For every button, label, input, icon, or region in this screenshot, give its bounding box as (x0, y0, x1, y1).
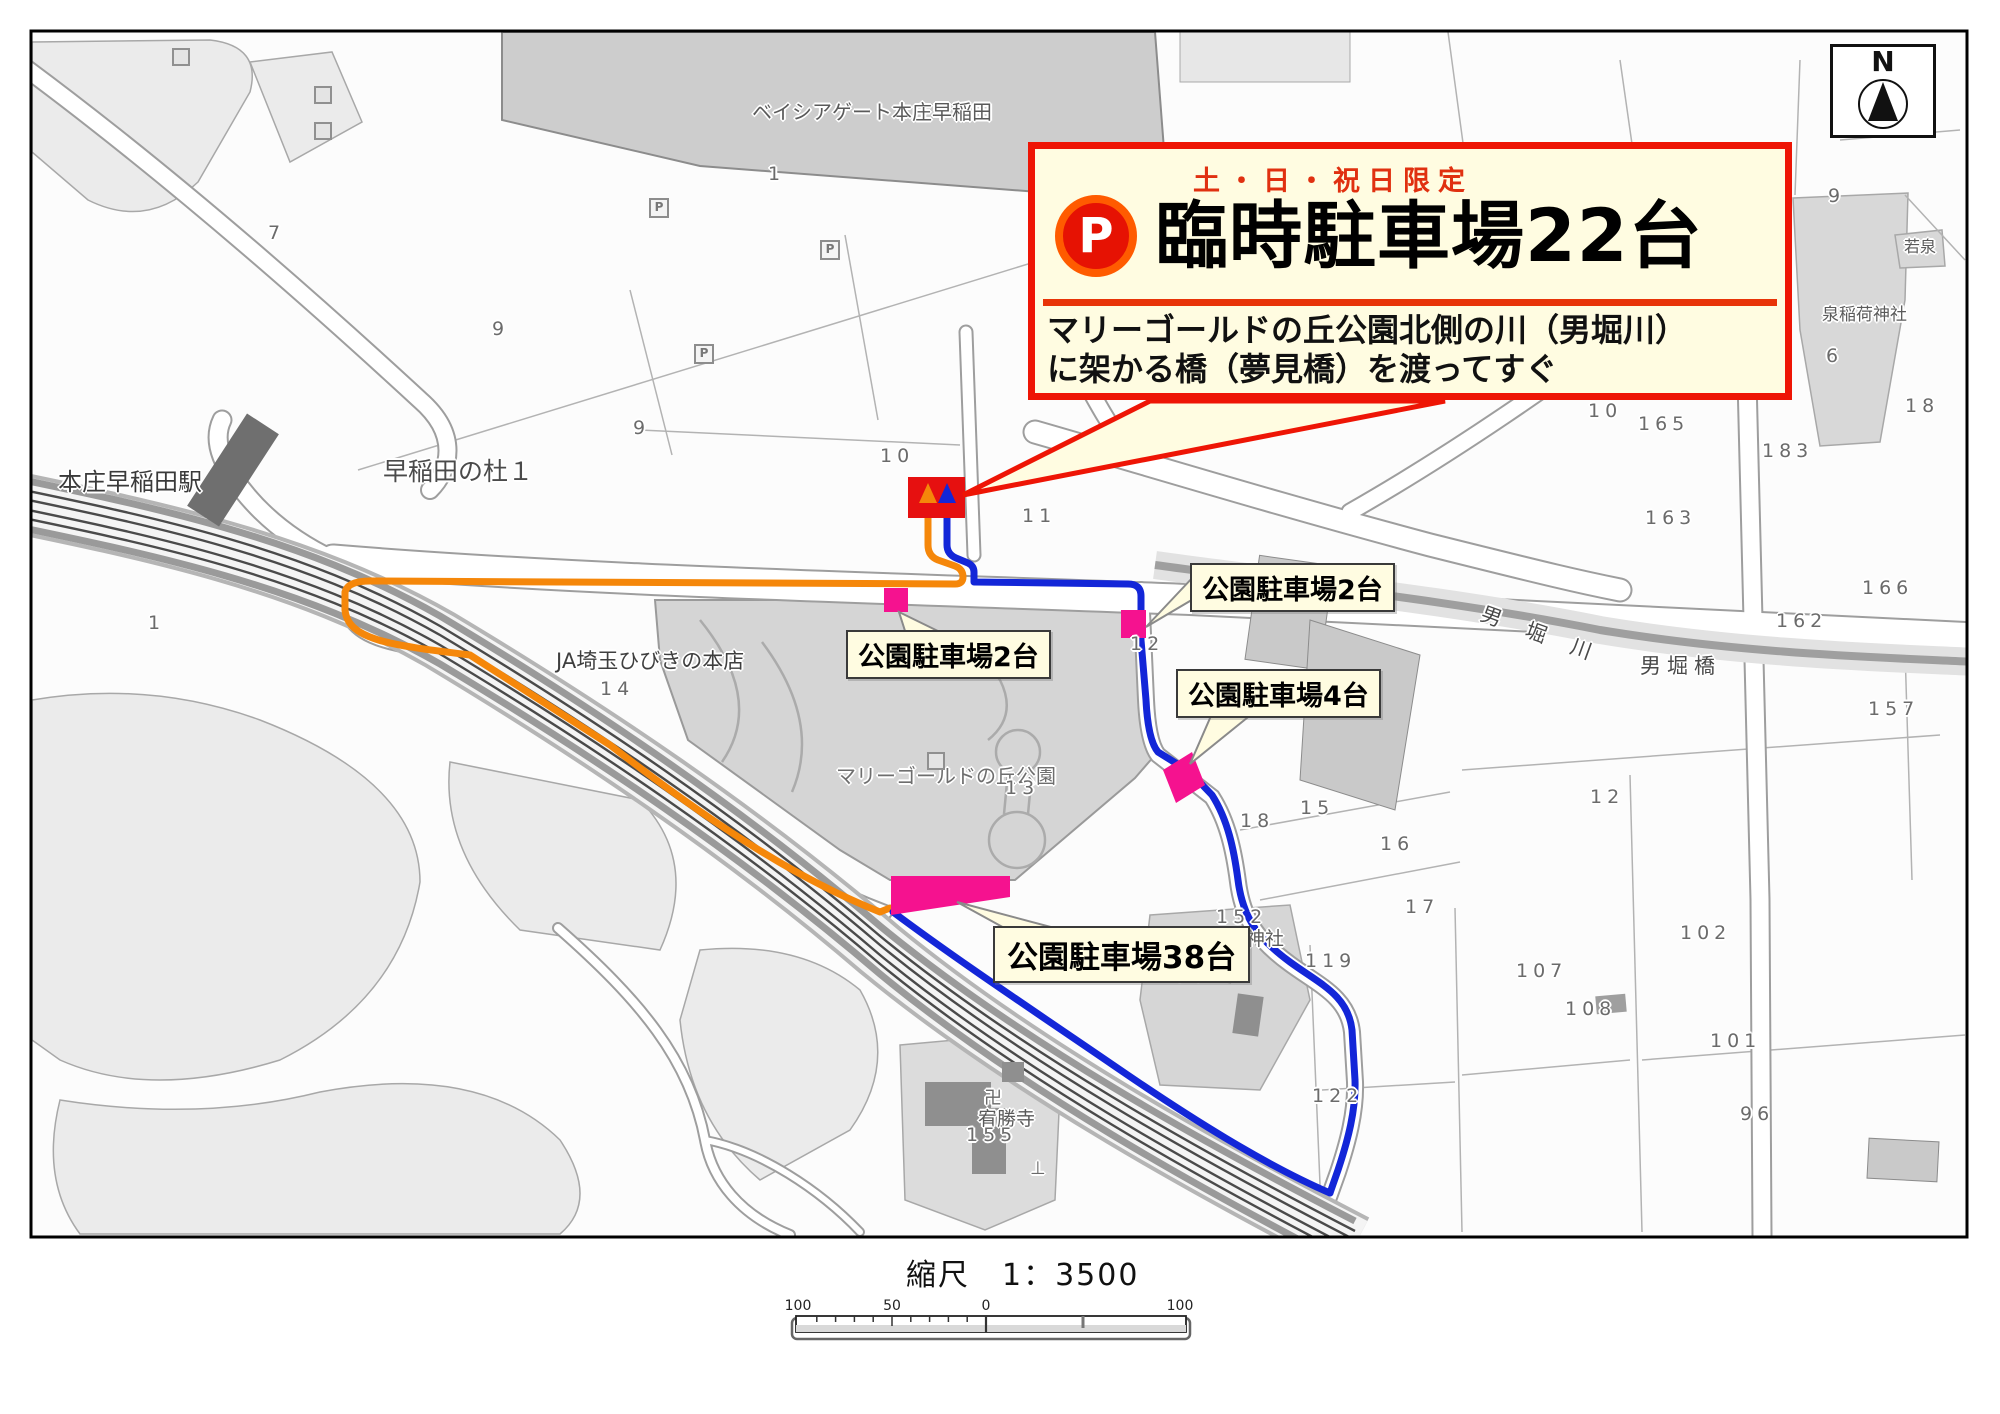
callout-description-line2: に架かる橋（夢見橋）を渡ってすぐ (1047, 350, 1687, 389)
label-lot2-left: 公園駐車場2台 (846, 630, 1051, 679)
callout-description: マリーゴールドの丘公園北側の川（男堀川） に架かる橋（夢見橋）を渡ってすぐ (1047, 311, 1687, 389)
parking-map-page: 本庄早稲田駅早稲田の杜１ベイシアゲート本庄早稲田JA埼玉ひびきの本店マリーゴール… (0, 0, 2000, 1414)
scale-caption: 縮尺 1：3500 (906, 1250, 1139, 1294)
label-lot4: 公園駐車場4台 (1176, 669, 1381, 718)
svg-text:100: 100 (1167, 1298, 1194, 1314)
label-lot38: 公園駐車場38台 (993, 926, 1250, 983)
callout-description-line1: マリーゴールドの丘公園北側の川（男堀川） (1047, 311, 1687, 350)
callout-subtitle: 土・日・祝日限定 (1193, 159, 1473, 198)
temp-parking-marker (908, 477, 965, 518)
compass-north-label: N (1833, 47, 1933, 77)
parking-badge-icon: P (1055, 195, 1137, 277)
scale-bar: 100 50 0 100 (780, 1294, 1220, 1346)
callout-divider (1043, 299, 1777, 306)
svg-text:0: 0 (982, 1298, 991, 1314)
parcel (1180, 32, 1350, 82)
north-compass: N (1830, 44, 1936, 138)
lot2-left-area (884, 588, 908, 612)
callout-title: 臨時駐車場22台 (1155, 200, 1703, 273)
temp-parking-callout: 土・日・祝日限定 P 臨時駐車場22台 マリーゴールドの丘公園北側の川（男堀川）… (1028, 142, 1792, 400)
label-lot2-right: 公園駐車場2台 (1190, 563, 1395, 612)
svg-text:100: 100 (785, 1298, 812, 1314)
svg-text:50: 50 (883, 1298, 901, 1314)
lot2-right-area (1121, 610, 1146, 638)
compass-rose-icon (1855, 77, 1911, 131)
